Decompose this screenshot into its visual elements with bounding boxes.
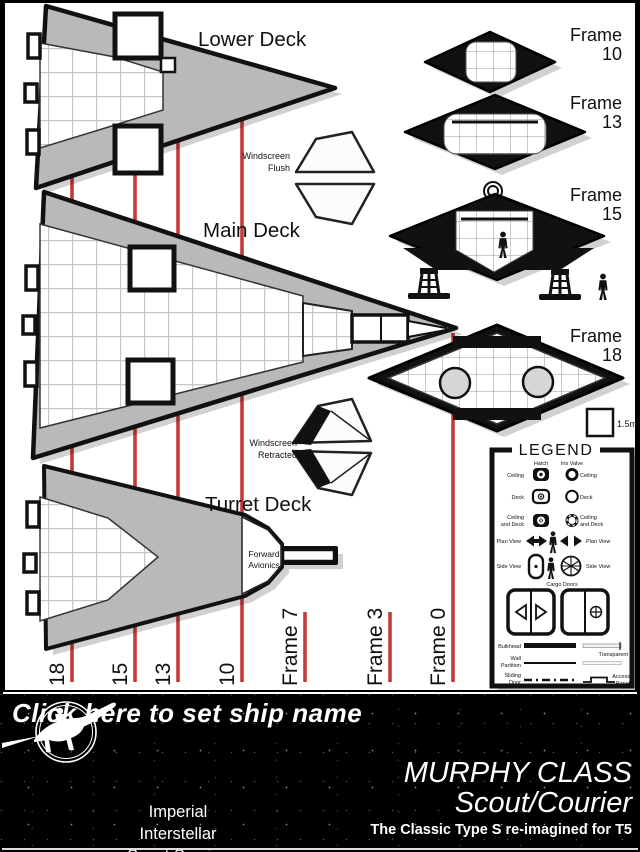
legend-label: Plan View <box>497 539 521 545</box>
legend-title: LEGEND <box>519 442 594 459</box>
cargo-door-right-icon <box>562 590 608 634</box>
iris-deck-icon <box>566 491 578 503</box>
footer-bottom-line <box>2 848 638 850</box>
fuel-tank-left <box>440 368 470 398</box>
legend-label: Deck <box>580 495 593 501</box>
main-deck-airlock-top <box>130 247 174 290</box>
legend-label: Wall <box>511 656 522 662</box>
class-type: Scout/Courier <box>332 788 632 818</box>
legend-cargo-doors-label: Cargo Doors <box>546 582 577 588</box>
windscreen-retracted-label-1: Windscreen <box>249 438 297 448</box>
legend-iris-header: Iris Valve <box>561 461 583 467</box>
legend-label: Access <box>612 674 630 680</box>
fuel-tank-right <box>523 367 553 397</box>
main-deck-airlock-bottom <box>128 360 173 403</box>
scale-label: 1.5m <box>617 419 637 429</box>
svg-text:18: 18 <box>602 345 622 365</box>
class-name: MURPHY CLASS <box>332 758 632 788</box>
legend-label: Deck <box>511 495 524 501</box>
legend-label: Ceiling <box>507 515 524 521</box>
legend-label: Ceiling <box>580 515 597 521</box>
svg-text:10: 10 <box>216 663 239 686</box>
svg-text:15: 15 <box>602 204 622 224</box>
forward-avionics-label-2: Avionics <box>248 560 280 570</box>
svg-text:Frame: Frame <box>570 25 622 45</box>
svg-text:10: 10 <box>602 44 622 64</box>
org-name: Imperial Interstellar Scout Service <box>112 802 244 852</box>
legend-hatch-header: Hatch <box>534 461 548 467</box>
legend-label: Panel <box>616 681 630 687</box>
windscreen-retracted-label-2: Retracted <box>258 450 297 460</box>
turret-deck-label: Turret Deck <box>205 493 312 516</box>
cargo-door-left-icon <box>508 590 554 634</box>
lower-deck-airlock-top <box>115 14 161 58</box>
svg-text:Frame 7: Frame 7 <box>279 608 302 686</box>
forward-avionics-label-1: Forward <box>248 549 279 559</box>
svg-text:13: 13 <box>152 663 175 686</box>
legend-label: and Deck <box>501 522 524 528</box>
legend-label: Ceiling <box>580 473 597 479</box>
transparent-line-sample <box>583 644 621 648</box>
svg-text:15: 15 <box>109 663 132 686</box>
legend-label: Transparent <box>599 652 629 658</box>
lower-deck-label: Lower Deck <box>198 28 307 51</box>
logo-tail <box>2 736 40 748</box>
svg-text:18: 18 <box>46 663 69 686</box>
legend-label: and Deck <box>580 522 603 528</box>
legend-label: Bulkhead <box>498 644 521 650</box>
svg-text:Frame: Frame <box>570 326 622 346</box>
legend-label: Partition <box>501 663 521 669</box>
main-deck-label: Main Deck <box>203 219 301 242</box>
legend-box: LEGEND Hatch Iris Valve Ceiling Ceiling … <box>492 441 638 692</box>
legend-label: Door <box>509 680 521 686</box>
legend-label: Sliding <box>504 673 521 679</box>
windscreen-flush-label-2: Flush <box>268 163 290 173</box>
deck-plan-sheet: 1.5m LEGEND Hatch Iris Valve Ceiling Cei… <box>0 0 640 852</box>
iiss-logo <box>0 690 120 774</box>
svg-text:Frame: Frame <box>570 93 622 113</box>
class-title-block: MURPHY CLASS Scout/Courier The Classic T… <box>332 758 632 838</box>
legend-label: Side View <box>497 564 521 570</box>
legend-label: Plan View <box>586 539 610 545</box>
svg-text:Frame 0: Frame 0 <box>427 608 450 686</box>
svg-text:Frame: Frame <box>570 185 622 205</box>
tagline: The Classic Type S re-imagined for T5 <box>332 822 632 838</box>
nose-probe <box>283 550 334 561</box>
lower-deck-airlock-bottom <box>115 126 161 173</box>
legend-label: Side View <box>586 564 610 570</box>
svg-text:Frame 3: Frame 3 <box>364 608 387 686</box>
bulkhead-line-sample <box>524 643 576 648</box>
windscreen-flush-label-1: Windscreen <box>242 151 290 161</box>
svg-text:13: 13 <box>602 112 622 132</box>
footer-band: Click here to set ship name Imperial Int… <box>0 690 640 852</box>
legend-label: Ceiling <box>507 473 524 479</box>
org-name-line1: Imperial Interstellar <box>112 802 244 846</box>
iris-side-view-icon <box>562 557 581 576</box>
